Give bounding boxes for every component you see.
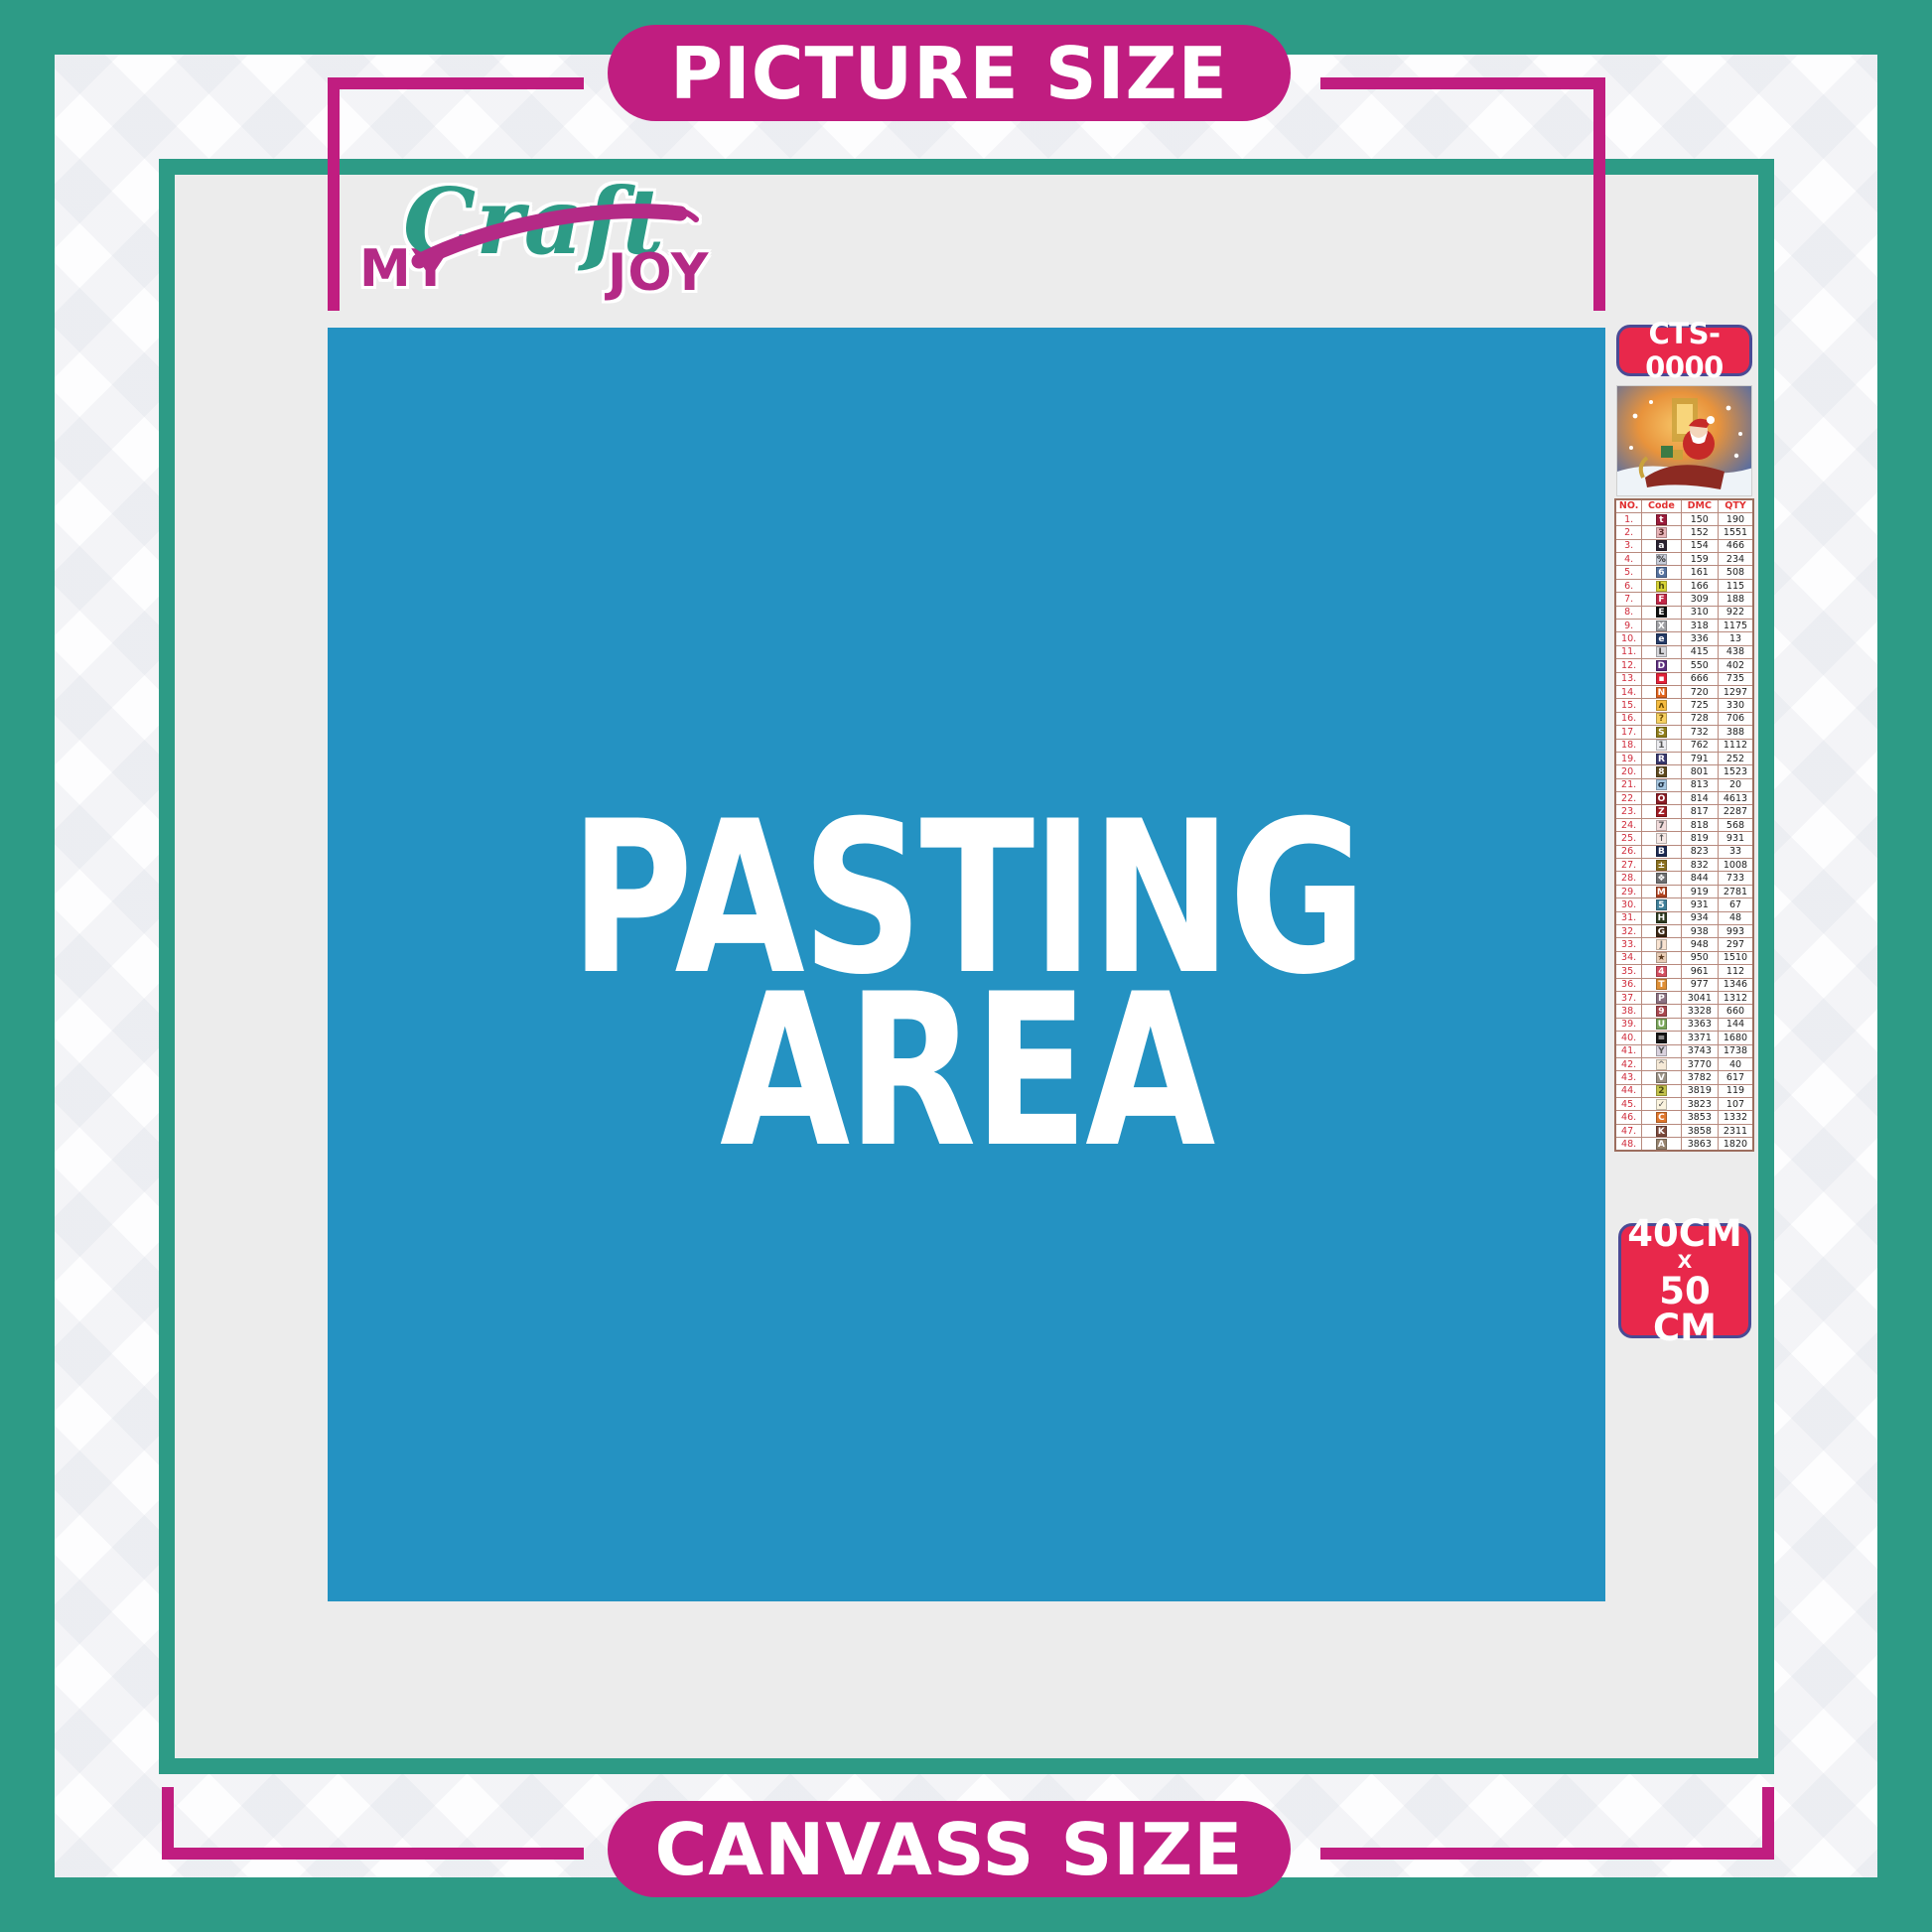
symbol-cell: E: [1642, 606, 1681, 619]
quantity: 1112: [1718, 739, 1753, 752]
dmc-code: 725: [1681, 699, 1718, 712]
row-number: 28.: [1615, 872, 1642, 885]
table-row: 41.Y37431738: [1615, 1044, 1753, 1057]
row-number: 35.: [1615, 965, 1642, 978]
row-number: 14.: [1615, 685, 1642, 698]
symbol-cell: ★: [1642, 951, 1681, 964]
quantity: 115: [1718, 579, 1753, 592]
table-header-row: NO. Code DMC QTY: [1615, 499, 1753, 512]
row-number: 44.: [1615, 1084, 1642, 1097]
quantity: 1510: [1718, 951, 1753, 964]
color-symbol-swatch: %: [1656, 554, 1667, 565]
row-number: 48.: [1615, 1138, 1642, 1151]
dmc-code: 310: [1681, 606, 1718, 619]
color-symbol-swatch: R: [1656, 754, 1667, 764]
table-row: 32.G938993: [1615, 925, 1753, 938]
symbol-cell: D: [1642, 659, 1681, 672]
symbol-cell: P: [1642, 991, 1681, 1004]
quantity: 1820: [1718, 1138, 1753, 1151]
row-number: 3.: [1615, 539, 1642, 552]
row-number: 37.: [1615, 991, 1642, 1004]
color-symbol-swatch: U: [1656, 1019, 1667, 1030]
row-number: 46.: [1615, 1111, 1642, 1124]
symbol-cell: 9: [1642, 1005, 1681, 1018]
quantity: 234: [1718, 553, 1753, 566]
table-row: 20.88011523: [1615, 765, 1753, 778]
symbol-cell: 4: [1642, 965, 1681, 978]
row-number: 11.: [1615, 645, 1642, 658]
quantity: 922: [1718, 606, 1753, 619]
table-row: 40.=33711680: [1615, 1032, 1753, 1044]
row-number: 42.: [1615, 1057, 1642, 1070]
dmc-code: 3819: [1681, 1084, 1718, 1097]
table-row: 4.%159234: [1615, 553, 1753, 566]
table-row: 14.N7201297: [1615, 685, 1753, 698]
table-row: 30.593167: [1615, 898, 1753, 911]
symbol-cell: ❖: [1642, 872, 1681, 885]
color-symbol-swatch: e: [1656, 633, 1667, 644]
row-number: 4.: [1615, 553, 1642, 566]
row-number: 9.: [1615, 620, 1642, 632]
table-row: 12.D550402: [1615, 659, 1753, 672]
quantity: 931: [1718, 832, 1753, 845]
dmc-code: 938: [1681, 925, 1718, 938]
table-row: 47.K38582311: [1615, 1124, 1753, 1137]
row-number: 5.: [1615, 566, 1642, 579]
color-symbol-swatch: Y: [1656, 1045, 1667, 1056]
symbol-cell: F: [1642, 593, 1681, 606]
row-number: 16.: [1615, 712, 1642, 725]
table-row: 28.❖844733: [1615, 872, 1753, 885]
dmc-table-body: 1.t1501902.315215513.a1544664.%1592345.6…: [1615, 512, 1753, 1151]
dmc-code: 3863: [1681, 1138, 1718, 1151]
color-symbol-swatch: P: [1656, 993, 1667, 1004]
dmc-code: 3371: [1681, 1032, 1718, 1044]
quantity: 144: [1718, 1018, 1753, 1031]
row-number: 15.: [1615, 699, 1642, 712]
picture-bracket-top-right-line: [1320, 77, 1605, 89]
symbol-cell: ↑: [1642, 832, 1681, 845]
color-symbol-swatch: J: [1656, 939, 1667, 950]
row-number: 7.: [1615, 593, 1642, 606]
canvas-size-badge: 40CM X 50 CM: [1618, 1223, 1751, 1338]
symbol-cell: =: [1642, 1032, 1681, 1044]
color-symbol-swatch: L: [1656, 646, 1667, 657]
size-width-label: 40CM: [1627, 1215, 1741, 1252]
col-header-qty: QTY: [1718, 499, 1753, 512]
dmc-code: 154: [1681, 539, 1718, 552]
canvass-size-label: CANVASS SIZE: [655, 1808, 1244, 1891]
quantity: 67: [1718, 898, 1753, 911]
quantity: 330: [1718, 699, 1753, 712]
symbol-cell: X: [1642, 620, 1681, 632]
table-row: 35.4961112: [1615, 965, 1753, 978]
color-symbol-swatch: S: [1656, 727, 1667, 738]
row-number: 39.: [1615, 1018, 1642, 1031]
symbol-cell: t: [1642, 512, 1681, 525]
color-symbol-swatch: D: [1656, 660, 1667, 671]
picture-size-banner: PICTURE SIZE: [608, 25, 1291, 121]
dmc-code: 720: [1681, 685, 1718, 698]
row-number: 47.: [1615, 1124, 1642, 1137]
row-number: 21.: [1615, 778, 1642, 791]
color-symbol-swatch: h: [1656, 581, 1667, 592]
quantity: 402: [1718, 659, 1753, 672]
dmc-code: 318: [1681, 620, 1718, 632]
dmc-code: 161: [1681, 566, 1718, 579]
quantity: 33: [1718, 845, 1753, 858]
table-row: 15.ʌ725330: [1615, 699, 1753, 712]
color-symbol-swatch: ±: [1656, 860, 1667, 871]
table-row: 44.23819119: [1615, 1084, 1753, 1097]
table-row: 16.?728706: [1615, 712, 1753, 725]
dmc-code: 814: [1681, 792, 1718, 805]
picture-bracket-right-line: [1593, 77, 1605, 311]
quantity: 733: [1718, 872, 1753, 885]
table-row: 48.A38631820: [1615, 1138, 1753, 1151]
table-row: 2.31521551: [1615, 526, 1753, 539]
table-row: 36.T9771346: [1615, 978, 1753, 991]
row-number: 31.: [1615, 911, 1642, 924]
dmc-code: 817: [1681, 805, 1718, 818]
color-symbol-swatch: ʌ: [1656, 700, 1667, 711]
color-symbol-swatch: 9: [1656, 1006, 1667, 1017]
quantity: 107: [1718, 1098, 1753, 1111]
dmc-code: 166: [1681, 579, 1718, 592]
symbol-cell: 8: [1642, 765, 1681, 778]
picture-size-label: PICTURE SIZE: [670, 32, 1228, 115]
dmc-code: 931: [1681, 898, 1718, 911]
symbol-cell: L: [1642, 645, 1681, 658]
row-number: 23.: [1615, 805, 1642, 818]
dmc-code: 844: [1681, 872, 1718, 885]
canvass-size-banner: CANVASS SIZE: [608, 1801, 1291, 1897]
symbol-cell: 2: [1642, 1084, 1681, 1097]
table-row: 27.±8321008: [1615, 859, 1753, 872]
dmc-code: 950: [1681, 951, 1718, 964]
row-number: 12.: [1615, 659, 1642, 672]
symbol-cell: G: [1642, 925, 1681, 938]
dmc-code: 791: [1681, 752, 1718, 764]
dmc-code: 948: [1681, 938, 1718, 951]
symbol-cell: ▪: [1642, 672, 1681, 685]
symbol-cell: 6: [1642, 566, 1681, 579]
table-row: 25.↑819931: [1615, 832, 1753, 845]
quantity: 1738: [1718, 1044, 1753, 1057]
table-row: 26.B82333: [1615, 845, 1753, 858]
color-symbol-swatch: 5: [1656, 899, 1667, 910]
symbol-cell: σ: [1642, 778, 1681, 791]
symbol-cell: Z: [1642, 805, 1681, 818]
quantity: 4613: [1718, 792, 1753, 805]
quantity: 706: [1718, 712, 1753, 725]
size-height-label: 50 CM: [1621, 1273, 1748, 1346]
table-row: 33.J948297: [1615, 938, 1753, 951]
color-symbol-swatch: ▪: [1656, 673, 1667, 684]
symbol-cell: T: [1642, 978, 1681, 991]
color-symbol-swatch: K: [1656, 1126, 1667, 1137]
dmc-color-table: NO. Code DMC QTY 1.t1501902.315215513.a1…: [1614, 498, 1754, 1152]
row-number: 24.: [1615, 818, 1642, 831]
table-row: 34.★9501510: [1615, 951, 1753, 964]
dmc-code: 152: [1681, 526, 1718, 539]
color-symbol-swatch: t: [1656, 514, 1667, 525]
color-symbol-swatch: 6: [1656, 567, 1667, 578]
symbol-cell: B: [1642, 845, 1681, 858]
table-row: 18.17621112: [1615, 739, 1753, 752]
symbol-cell: V: [1642, 1071, 1681, 1084]
color-symbol-swatch: T: [1656, 979, 1667, 990]
col-header-no: NO.: [1615, 499, 1642, 512]
quantity: 188: [1718, 593, 1753, 606]
symbol-cell: ?: [1642, 712, 1681, 725]
picture-bracket-left-line: [328, 77, 340, 311]
pasting-area: PASTING AREA: [328, 328, 1605, 1601]
table-row: 42.^377040: [1615, 1057, 1753, 1070]
symbol-cell: O: [1642, 792, 1681, 805]
table-row: 45.✓3823107: [1615, 1098, 1753, 1111]
table-row: 37.P30411312: [1615, 991, 1753, 1004]
table-row: 31.H93448: [1615, 911, 1753, 924]
quantity: 1346: [1718, 978, 1753, 991]
color-symbol-swatch: N: [1656, 687, 1667, 698]
row-number: 22.: [1615, 792, 1642, 805]
dmc-code: 961: [1681, 965, 1718, 978]
row-number: 6.: [1615, 579, 1642, 592]
dmc-code: 3363: [1681, 1018, 1718, 1031]
quantity: 2311: [1718, 1124, 1753, 1137]
quantity: 508: [1718, 566, 1753, 579]
quantity: 1551: [1718, 526, 1753, 539]
quantity: 119: [1718, 1084, 1753, 1097]
row-number: 20.: [1615, 765, 1642, 778]
picture-bracket-top-left-line: [328, 77, 584, 89]
design-thumbnail: [1616, 385, 1752, 496]
dmc-code: 832: [1681, 859, 1718, 872]
quantity: 568: [1718, 818, 1753, 831]
row-number: 18.: [1615, 739, 1642, 752]
table-row: 7.F309188: [1615, 593, 1753, 606]
table-row: 5.6161508: [1615, 566, 1753, 579]
symbol-cell: ✓: [1642, 1098, 1681, 1111]
canvass-bracket-bottom-left-line: [162, 1848, 584, 1860]
color-symbol-swatch: Z: [1656, 806, 1667, 817]
product-code-badge: CTS-0000: [1616, 325, 1752, 376]
quantity: 2287: [1718, 805, 1753, 818]
dmc-code: 3770: [1681, 1057, 1718, 1070]
quantity: 190: [1718, 512, 1753, 525]
row-number: 34.: [1615, 951, 1642, 964]
table-row: 6.h166115: [1615, 579, 1753, 592]
dmc-code: 934: [1681, 911, 1718, 924]
color-symbol-swatch: 7: [1656, 820, 1667, 831]
dmc-code: 3743: [1681, 1044, 1718, 1057]
dmc-code: 3328: [1681, 1005, 1718, 1018]
quantity: 2781: [1718, 885, 1753, 897]
row-number: 45.: [1615, 1098, 1642, 1111]
quantity: 112: [1718, 965, 1753, 978]
color-symbol-swatch: G: [1656, 926, 1667, 937]
quantity: 1008: [1718, 859, 1753, 872]
dmc-code: 3041: [1681, 991, 1718, 1004]
color-symbol-swatch: B: [1656, 846, 1667, 857]
symbol-cell: 1: [1642, 739, 1681, 752]
dmc-code: 3853: [1681, 1111, 1718, 1124]
row-number: 2.: [1615, 526, 1642, 539]
table-row: 43.V3782617: [1615, 1071, 1753, 1084]
row-number: 8.: [1615, 606, 1642, 619]
logo-brush-swoosh-icon: [357, 182, 705, 316]
row-number: 32.: [1615, 925, 1642, 938]
dmc-code: 818: [1681, 818, 1718, 831]
canvass-bracket-left-line: [162, 1787, 174, 1860]
color-symbol-swatch: 4: [1656, 966, 1667, 977]
quantity: 993: [1718, 925, 1753, 938]
quantity: 252: [1718, 752, 1753, 764]
symbol-cell: A: [1642, 1138, 1681, 1151]
row-number: 33.: [1615, 938, 1642, 951]
quantity: 617: [1718, 1071, 1753, 1084]
dmc-code: 666: [1681, 672, 1718, 685]
color-symbol-swatch: ❖: [1656, 873, 1667, 884]
table-row: 13.▪666735: [1615, 672, 1753, 685]
symbol-cell: S: [1642, 726, 1681, 739]
symbol-cell: ʌ: [1642, 699, 1681, 712]
color-symbol-swatch: C: [1656, 1112, 1667, 1123]
table-row: 38.93328660: [1615, 1005, 1753, 1018]
quantity: 466: [1718, 539, 1753, 552]
col-header-code: Code: [1642, 499, 1681, 512]
dmc-code: 801: [1681, 765, 1718, 778]
row-number: 19.: [1615, 752, 1642, 764]
table-row: 29.M9192781: [1615, 885, 1753, 897]
table-row: 24.7818568: [1615, 818, 1753, 831]
symbol-cell: h: [1642, 579, 1681, 592]
color-symbol-swatch: A: [1656, 1139, 1667, 1150]
symbol-cell: J: [1642, 938, 1681, 951]
brand-logo: MY Craft JOY: [357, 182, 705, 316]
quantity: 1175: [1718, 620, 1753, 632]
table-row: 23.Z8172287: [1615, 805, 1753, 818]
dmc-code: 728: [1681, 712, 1718, 725]
symbol-cell: R: [1642, 752, 1681, 764]
quantity: 20: [1718, 778, 1753, 791]
dmc-code: 823: [1681, 845, 1718, 858]
dmc-code: 336: [1681, 632, 1718, 645]
table-row: 19.R791252: [1615, 752, 1753, 764]
symbol-cell: H: [1642, 911, 1681, 924]
product-infographic: { "colors": { "teal": "#2d9b86", "magent…: [0, 0, 1932, 1932]
symbol-cell: 7: [1642, 818, 1681, 831]
symbol-cell: U: [1642, 1018, 1681, 1031]
table-row: 22.O8144613: [1615, 792, 1753, 805]
dmc-code: 813: [1681, 778, 1718, 791]
quantity: 438: [1718, 645, 1753, 658]
dmc-code: 3823: [1681, 1098, 1718, 1111]
color-symbol-swatch: ?: [1656, 713, 1667, 724]
quantity: 660: [1718, 1005, 1753, 1018]
quantity: 1523: [1718, 765, 1753, 778]
quantity: 735: [1718, 672, 1753, 685]
table-row: 1.t150190: [1615, 512, 1753, 525]
table-row: 46.C38531332: [1615, 1111, 1753, 1124]
symbol-cell: C: [1642, 1111, 1681, 1124]
dmc-code: 150: [1681, 512, 1718, 525]
dmc-code: 3782: [1681, 1071, 1718, 1084]
row-number: 13.: [1615, 672, 1642, 685]
symbol-cell: a: [1642, 539, 1681, 552]
row-number: 29.: [1615, 885, 1642, 897]
row-number: 41.: [1615, 1044, 1642, 1057]
row-number: 26.: [1615, 845, 1642, 858]
dmc-code: 977: [1681, 978, 1718, 991]
dmc-code: 732: [1681, 726, 1718, 739]
dmc-code: 3858: [1681, 1124, 1718, 1137]
symbol-cell: K: [1642, 1124, 1681, 1137]
color-symbol-swatch: 2: [1656, 1085, 1667, 1096]
color-symbol-swatch: E: [1656, 607, 1667, 618]
symbol-cell: %: [1642, 553, 1681, 566]
quantity: 1312: [1718, 991, 1753, 1004]
table-row: 9.X3181175: [1615, 620, 1753, 632]
table-row: 10.e33613: [1615, 632, 1753, 645]
dmc-code: 309: [1681, 593, 1718, 606]
pasting-area-line2: AREA: [720, 985, 1212, 1158]
row-number: 43.: [1615, 1071, 1642, 1084]
table-row: 21.σ81320: [1615, 778, 1753, 791]
row-number: 1.: [1615, 512, 1642, 525]
quantity: 40: [1718, 1057, 1753, 1070]
symbol-cell: M: [1642, 885, 1681, 897]
table-row: 8.E310922: [1615, 606, 1753, 619]
symbol-cell: e: [1642, 632, 1681, 645]
dmc-code: 919: [1681, 885, 1718, 897]
row-number: 30.: [1615, 898, 1642, 911]
row-number: 27.: [1615, 859, 1642, 872]
col-header-dmc: DMC: [1681, 499, 1718, 512]
color-symbol-swatch: 1: [1656, 740, 1667, 751]
color-symbol-swatch: 8: [1656, 766, 1667, 777]
table-row: 39.U3363144: [1615, 1018, 1753, 1031]
santa-sleigh-illustration-icon: [1617, 386, 1752, 496]
symbol-cell: N: [1642, 685, 1681, 698]
row-number: 17.: [1615, 726, 1642, 739]
color-symbol-swatch: σ: [1656, 779, 1667, 790]
symbol-cell: 3: [1642, 526, 1681, 539]
quantity: 1297: [1718, 685, 1753, 698]
color-symbol-swatch: H: [1656, 912, 1667, 923]
row-number: 10.: [1615, 632, 1642, 645]
color-symbol-swatch: 3: [1656, 527, 1667, 538]
quantity: 1680: [1718, 1032, 1753, 1044]
color-symbol-swatch: a: [1656, 540, 1667, 551]
color-symbol-swatch: X: [1656, 621, 1667, 631]
dmc-code: 159: [1681, 553, 1718, 566]
quantity: 297: [1718, 938, 1753, 951]
row-number: 25.: [1615, 832, 1642, 845]
symbol-cell: 5: [1642, 898, 1681, 911]
canvass-bracket-bottom-right-line: [1320, 1848, 1774, 1860]
quantity: 13: [1718, 632, 1753, 645]
dmc-code: 762: [1681, 739, 1718, 752]
row-number: 36.: [1615, 978, 1642, 991]
color-symbol-swatch: ^: [1656, 1059, 1667, 1070]
color-symbol-swatch: ✓: [1656, 1099, 1667, 1110]
color-symbol-swatch: ★: [1656, 952, 1667, 963]
dmc-code: 415: [1681, 645, 1718, 658]
color-symbol-swatch: V: [1656, 1072, 1667, 1083]
color-symbol-swatch: F: [1656, 594, 1667, 605]
